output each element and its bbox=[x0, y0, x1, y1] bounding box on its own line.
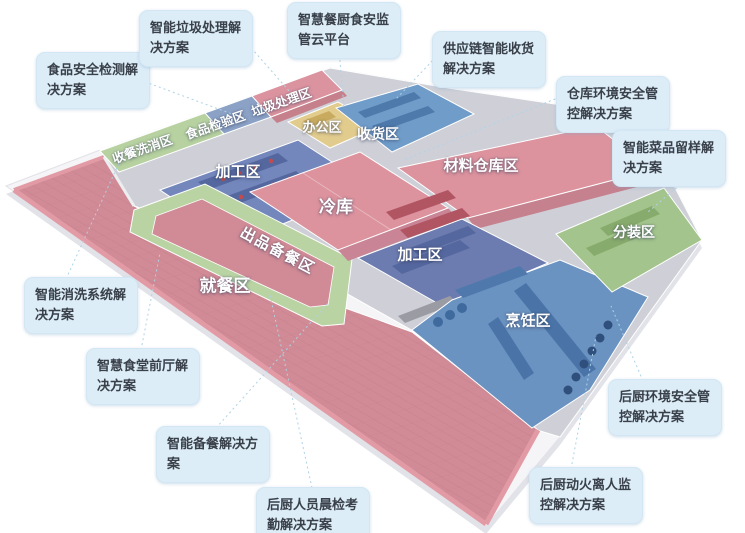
callout-smart-washing: 智能消洗系统解决方案 bbox=[24, 277, 138, 334]
callout-front-hall: 智慧食堂前厅解决方案 bbox=[86, 348, 200, 405]
zone-label-pengren: 烹饪区 bbox=[505, 310, 550, 331]
callout-smart-garbage: 智能垃圾处理解决方案 bbox=[139, 10, 253, 67]
callout-warehouse-env-safety: 仓库环境安全管控解决方案 bbox=[556, 76, 670, 133]
callout-supply-chain-receiving: 供应链智能收货解决方案 bbox=[432, 31, 546, 88]
zone-label-lengku: 冷库 bbox=[319, 193, 353, 218]
zone-label-jiucan: 就餐区 bbox=[200, 272, 251, 297]
diagram-canvas: 收餐洗消区 食品检验区 垃圾处理区 办公区 收货区 材料仓库区 加工区 冷库 加… bbox=[0, 0, 745, 533]
callout-smart-meal-prep: 智能备餐解决方案 bbox=[156, 426, 270, 483]
zone-label-bangong: 办公区 bbox=[302, 117, 341, 136]
callout-kitchen-env-safety: 后厨环境安全管控解决方案 bbox=[608, 379, 722, 436]
callout-fire-leave-monitor: 后厨动火离人监控解决方案 bbox=[529, 467, 643, 524]
zone-label-jiagong-2: 加工区 bbox=[397, 244, 442, 265]
callout-food-safety-cloud: 智慧餐厨食安监管云平台 bbox=[287, 2, 401, 59]
callout-morning-check: 后厨人员晨检考勤解决方案 bbox=[256, 487, 370, 533]
zone-label-cailiao-cangku: 材料仓库区 bbox=[443, 155, 518, 176]
zone-label-fenzhuang: 分装区 bbox=[613, 222, 655, 242]
zone-label-jiagong-1: 加工区 bbox=[215, 161, 260, 182]
zone-label-shouhuo: 收货区 bbox=[357, 124, 399, 144]
callout-dish-sample-retention: 智能菜品留样解决方案 bbox=[612, 130, 726, 187]
callout-food-safety-testing: 食品安全检测解决方案 bbox=[36, 52, 150, 109]
